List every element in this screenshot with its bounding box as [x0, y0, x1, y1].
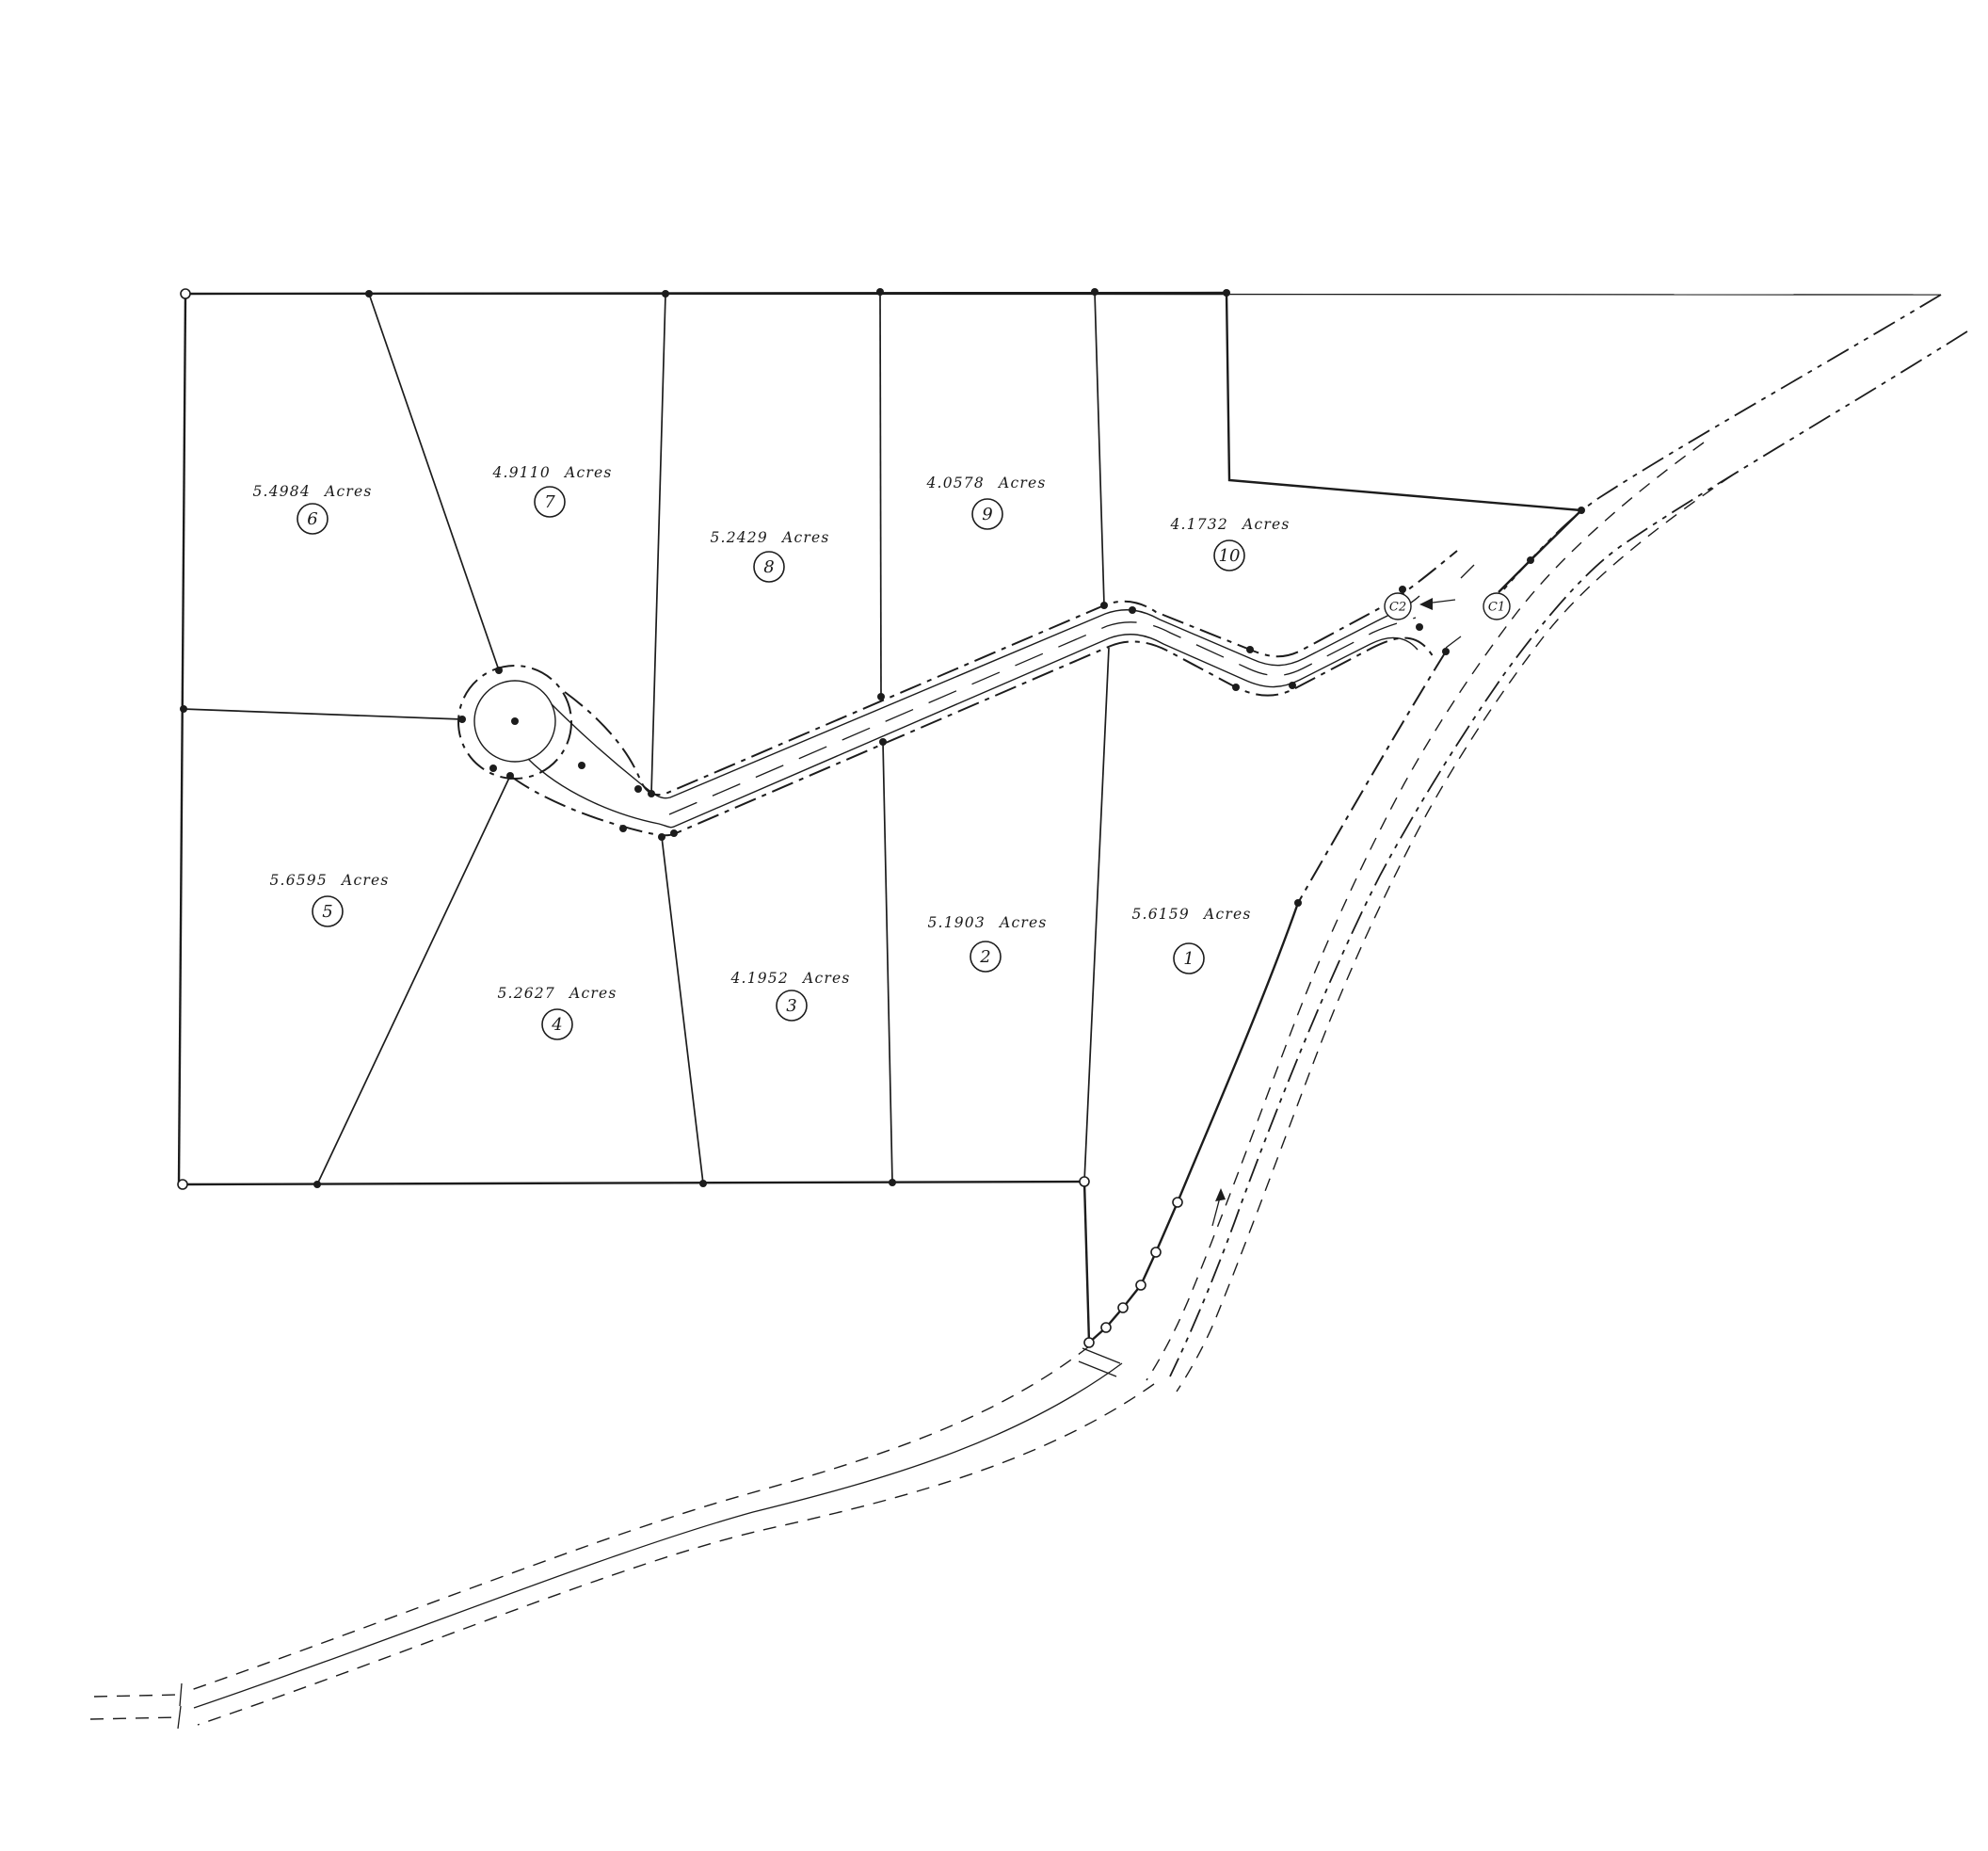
boundary-notch	[1226, 293, 1581, 510]
lot-acreage-text: 5.2429 Acres	[711, 529, 830, 546]
curve-label-C2: C2	[1385, 593, 1411, 620]
lot-label-6: 5.4984 Acres6	[253, 483, 373, 534]
lot-line-7-8	[651, 294, 665, 794]
lot-acreage-text: 4.0578 Acres	[926, 475, 1047, 491]
lot-label-1: 5.6159 Acres1	[1132, 906, 1252, 974]
road-pavement-north	[552, 596, 1419, 798]
lot-label-8: 5.2429 Acres8	[711, 529, 830, 582]
lot-line-5-6	[183, 709, 462, 719]
lot-number-text: 10	[1219, 546, 1241, 566]
intersection-tick-2	[1446, 636, 1461, 648]
curve-label-C1: C1	[1483, 593, 1510, 620]
boundary-top-lots	[185, 293, 1226, 294]
road-tail-stub-south	[90, 1717, 179, 1719]
road-centerline-east	[1107, 618, 1416, 676]
curve-label-text: C2	[1389, 601, 1406, 615]
road-centerline	[669, 626, 1107, 814]
lot-acreage-text: 4.1732 Acres	[1170, 516, 1291, 533]
plat-drawing: 5.6159 Acres15.1903 Acres24.1952 Acres35…	[0, 0, 1988, 1851]
survey-points	[178, 288, 1585, 1347]
curve-labels: C2C1	[1385, 593, 1510, 620]
lot-label-3: 4.1952 Acres3	[730, 970, 851, 1021]
road-tail-stub-north	[94, 1695, 179, 1697]
road-tail-edge-south	[198, 1384, 1154, 1725]
lot-label-2: 5.1903 Acres2	[928, 914, 1048, 972]
lot-acreage-text: 5.1903 Acres	[928, 914, 1048, 931]
road-pavement-south	[528, 635, 1418, 828]
road-tail-edge-north	[188, 1346, 1089, 1691]
lot-acreage-text: 4.9110 Acres	[492, 464, 613, 481]
lot-line-8-9	[880, 292, 881, 697]
existing-road-edge-mid-2	[1177, 475, 1732, 1392]
road-break-tick-2	[178, 1706, 181, 1729]
boundary-road-frontage-mid	[1298, 652, 1446, 903]
lot-acreage-text: 5.2627 Acres	[498, 985, 617, 1002]
lot-number-text: 2	[979, 947, 990, 967]
lot-line-2-3	[883, 742, 892, 1183]
boundary-left	[179, 294, 185, 1184]
lot-division-lines	[183, 292, 1109, 1184]
road-tail-centerline	[194, 1363, 1122, 1708]
road-section-bar-1	[1082, 1348, 1120, 1363]
lot-label-9: 4.0578 Acres9	[926, 475, 1047, 529]
lot-number-text: 6	[307, 509, 317, 529]
lot-label-5: 5.6595 Acres5	[270, 872, 390, 926]
lot-number-text: 1	[1183, 949, 1194, 969]
cul-de-sac-center-point	[511, 717, 519, 725]
lot-number-text: 9	[982, 505, 992, 524]
lot-acreage-text: 4.1952 Acres	[730, 970, 851, 987]
existing-road-row-se	[1170, 331, 1967, 1376]
lot-number-text: 5	[322, 902, 332, 922]
lot-label-4: 5.2627 Acres4	[498, 985, 617, 1039]
lot-line-6-7	[369, 294, 499, 670]
lot-line-3-4	[662, 837, 703, 1183]
existing-road	[90, 295, 1967, 1729]
lot-line-1-2	[1084, 648, 1109, 1182]
subdivision-boundary	[179, 293, 1941, 1343]
road-direction-arrow-head	[1215, 1188, 1226, 1201]
lot-acreage-text: 5.6159 Acres	[1132, 906, 1252, 923]
lot-line-4-5	[317, 776, 510, 1184]
lot-number-text: 4	[551, 1015, 562, 1035]
existing-road-row-ne-upper	[1490, 295, 1941, 605]
road-row-south	[510, 638, 1435, 836]
lot-number-text: 8	[763, 557, 774, 577]
lot-number-text: 3	[786, 996, 796, 1016]
plat-page: 5.6159 Acres15.1903 Acres24.1952 Acres35…	[0, 0, 1988, 1851]
lot-line-9-10	[1095, 292, 1104, 605]
lot-acreage-text: 5.4984 Acres	[253, 483, 373, 500]
road-break-tick-1	[180, 1683, 182, 1706]
lot-label-7: 4.9110 Acres7	[492, 464, 613, 517]
boundary-bottom-right	[1084, 1182, 1089, 1343]
intersection-tick-1	[1461, 565, 1474, 578]
lot-label-10: 4.1732 Acres10	[1170, 516, 1291, 571]
curve-label-text: C1	[1488, 601, 1505, 615]
road-section-bar-2	[1079, 1361, 1116, 1376]
intersection-arrow-head	[1419, 598, 1433, 610]
lot-labels: 5.6159 Acres15.1903 Acres24.1952 Acres35…	[253, 464, 1291, 1039]
lot-acreage-text: 5.6595 Acres	[270, 872, 390, 889]
internal-road	[458, 551, 1457, 835]
lot-number-text: 7	[544, 492, 555, 512]
